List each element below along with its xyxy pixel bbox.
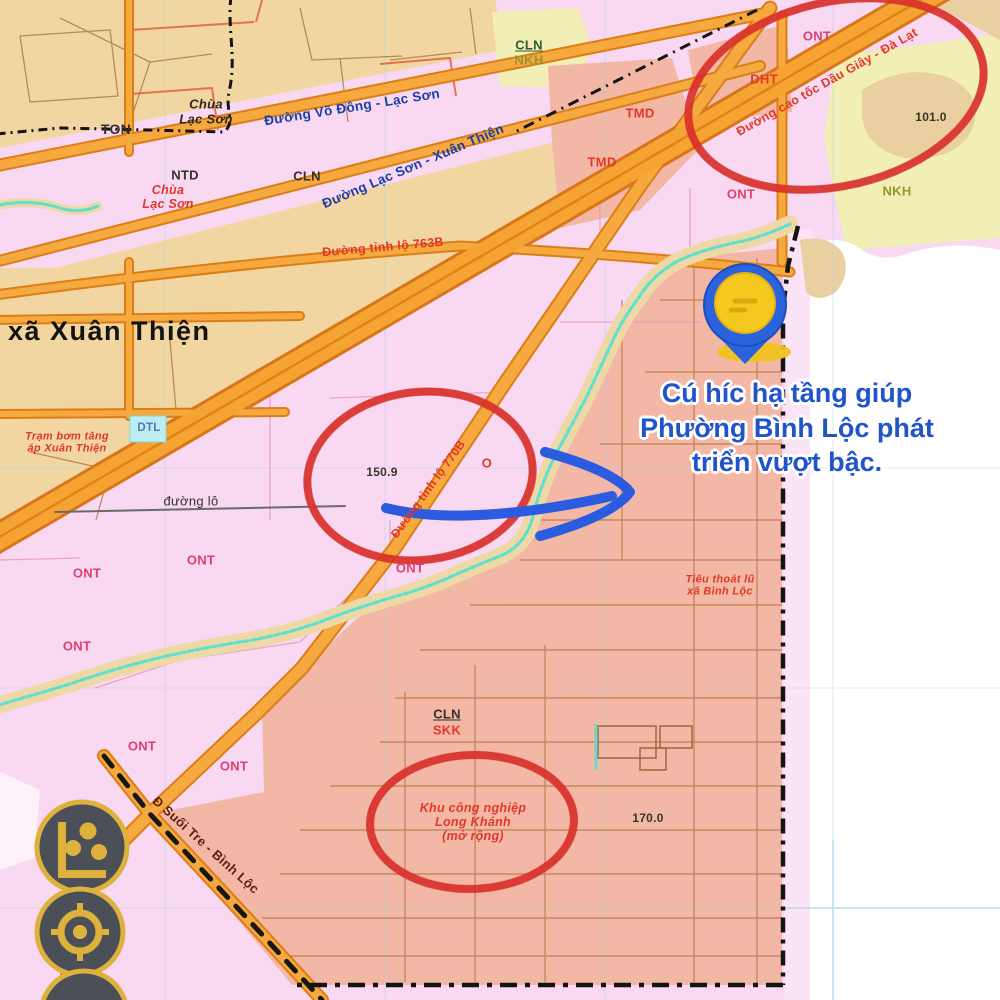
annotation-line-2: Phường Bình Lộc phát xyxy=(582,411,992,446)
zone-label-ont-left-3: ONT xyxy=(63,639,91,654)
zone-label-nkh-right: NKH xyxy=(882,184,911,199)
boundary-pink-strip xyxy=(784,230,812,1000)
chart-layers-button[interactable] xyxy=(37,802,127,892)
zone-label-ntd: NTD xyxy=(171,168,199,183)
zone-label-ont-center: ONT xyxy=(396,561,424,576)
zone-label-ont-left-2: ONT xyxy=(73,566,101,581)
zone-label-ont-left-1: ONT xyxy=(187,553,215,568)
zone-label-tmd-2: TMD xyxy=(587,155,616,170)
zone-label-cln-mid: CLN xyxy=(293,169,321,184)
place-pump-station: Trạm bơm tăngáp Xuân Thiện xyxy=(25,431,109,456)
zone-label-ont-left-5: ONT xyxy=(220,759,248,774)
zone-label-tmd-1: TMD xyxy=(625,106,654,121)
place-flood-drain: Tiêu thoát lũxã Bình Lộc xyxy=(685,574,754,599)
locate-button[interactable] xyxy=(37,889,123,975)
map-canvas xyxy=(0,0,1000,1000)
outside-white-area xyxy=(810,240,1000,1000)
zone-label-ont-mid-right: ONT xyxy=(727,187,755,202)
zone-label-ont-left-4: ONT xyxy=(128,739,156,754)
zone-label-ont-top-right: ONT xyxy=(803,29,831,44)
zone-label-cln-bottom: CLN xyxy=(433,707,461,722)
annotation-line-1: Cú híc hạ tầng giúp xyxy=(582,376,992,411)
place-pagoda-red: ChùaLạc Sơn xyxy=(142,183,193,211)
zoning-areas xyxy=(0,0,1000,1000)
elevation-150: 150.9 xyxy=(366,465,398,479)
planning-map: CLN NKH ONT DHT TMD TMD ONT 101.0 NKH Đư… xyxy=(0,0,1000,1000)
zone-label-skk: SKK xyxy=(433,723,461,738)
annotation-line-3: triển vượt bậc. xyxy=(582,445,992,480)
zone-label-dht: DHT xyxy=(750,72,778,87)
elevation-101: 101.0 xyxy=(915,110,947,124)
zone-label-ton: TON xyxy=(101,121,131,137)
zone-label-cln-top: CLN xyxy=(515,38,543,53)
zone-label-ont-partial: O xyxy=(482,456,492,471)
elevation-170: 170.0 xyxy=(632,811,664,825)
zone-label-dtl: DTL xyxy=(137,422,160,434)
place-pagoda-top: ChùaLạc Sơn xyxy=(179,97,232,126)
road-label-duong-lo: đường lô xyxy=(163,494,218,509)
annotation-caption: Cú híc hạ tầng giúp Phường Bình Lộc phát… xyxy=(582,376,992,480)
zone-label-nkh-top: NKH xyxy=(514,53,543,68)
place-industrial-park: Khu công nghiệpLong Khánh(mở rộng) xyxy=(420,801,527,843)
commune-title: xã Xuân Thiện xyxy=(8,316,211,347)
